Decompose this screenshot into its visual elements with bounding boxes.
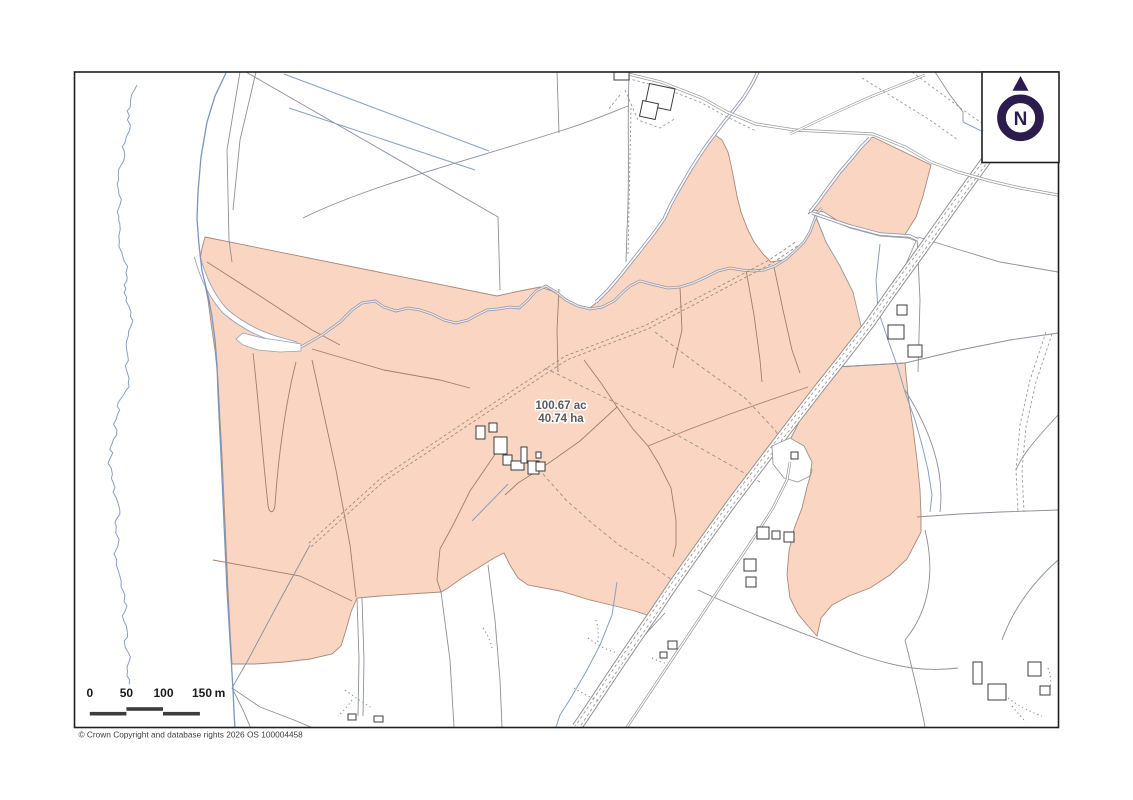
svg-text:50: 50 (120, 686, 134, 700)
svg-text:© Crown Copyright and database: © Crown Copyright and database rights 20… (79, 730, 304, 740)
svg-text:0: 0 (86, 686, 93, 700)
svg-text:100: 100 (153, 686, 173, 700)
svg-text:40.74 ha: 40.74 ha (538, 413, 584, 425)
svg-text:m: m (215, 686, 226, 700)
svg-text:150: 150 (192, 686, 212, 700)
svg-text:100.67 ac: 100.67 ac (535, 400, 587, 412)
svg-text:N: N (1014, 109, 1028, 130)
